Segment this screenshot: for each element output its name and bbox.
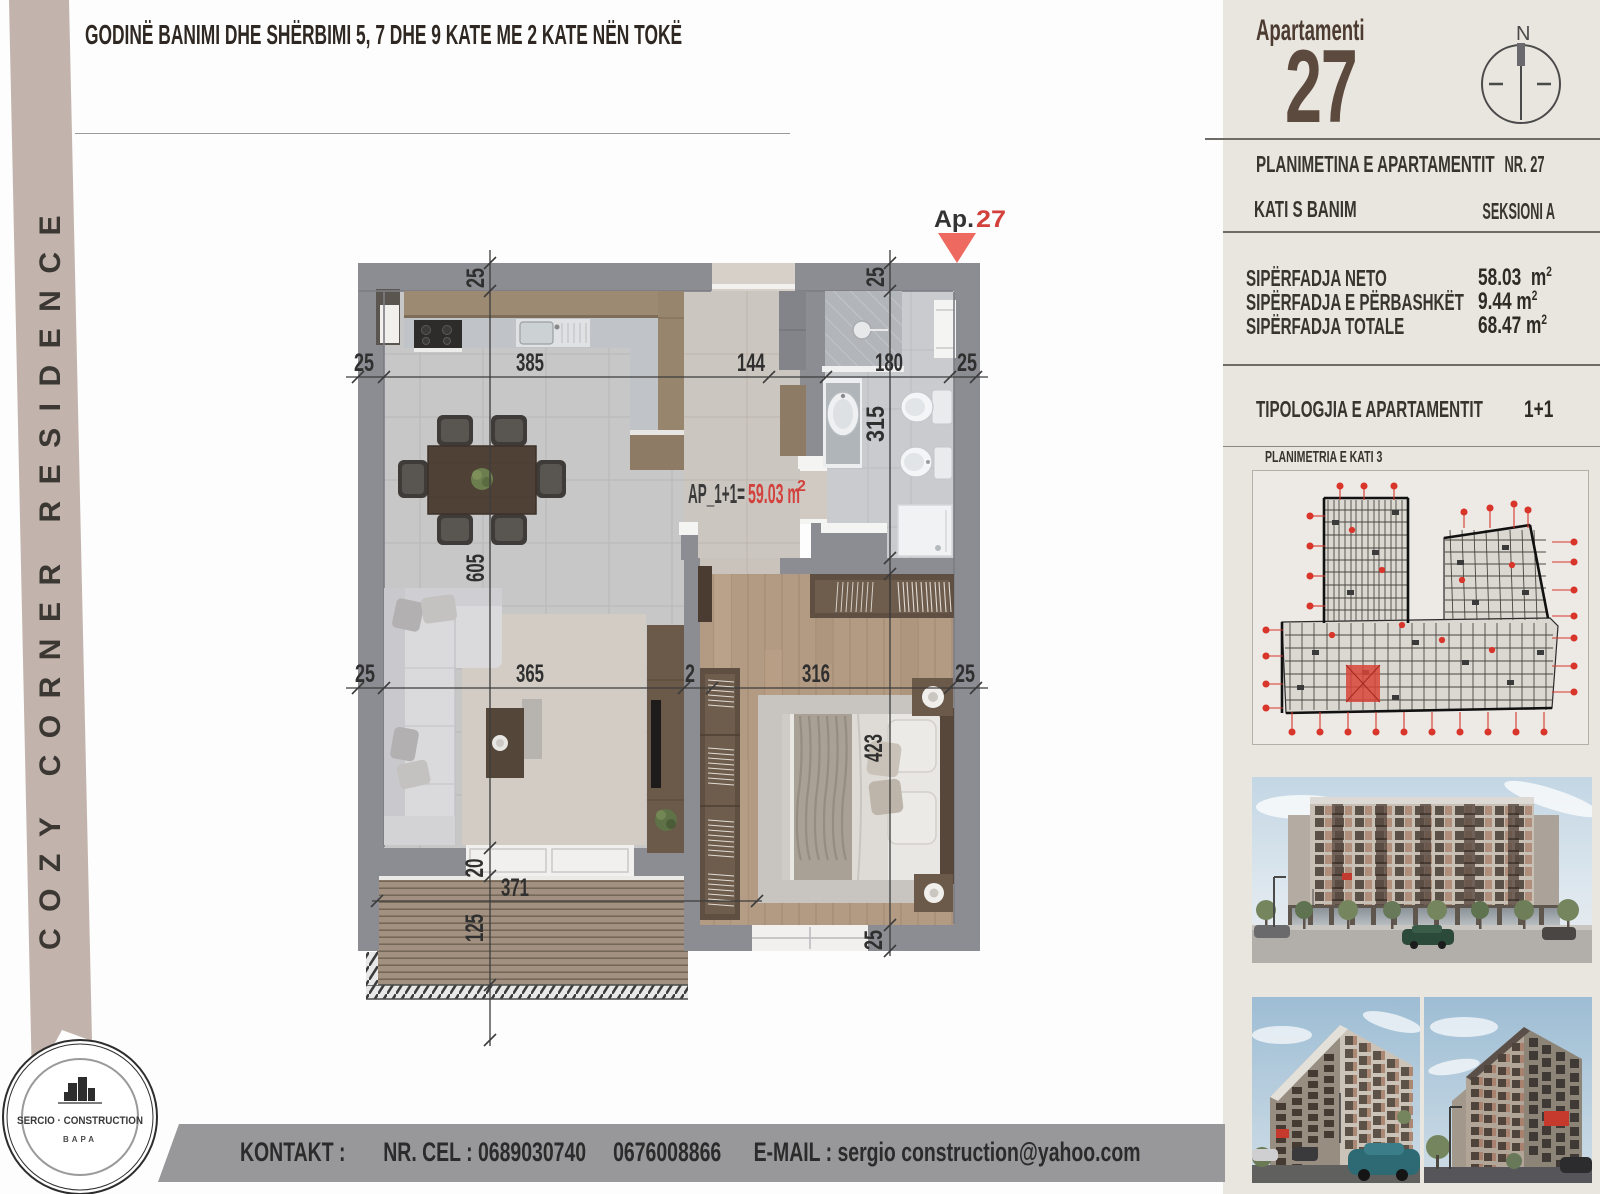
- svg-text:25: 25: [354, 349, 374, 377]
- svg-text:BAPA: BAPA: [63, 1135, 97, 1144]
- svg-text:316: 316: [802, 660, 830, 688]
- svg-text:365: 365: [516, 660, 544, 688]
- svg-text:605: 605: [462, 554, 490, 582]
- svg-text:423: 423: [860, 734, 888, 762]
- svg-text:2: 2: [685, 660, 695, 688]
- svg-text:180: 180: [875, 349, 903, 377]
- svg-text:AP_1+1=: AP_1+1=: [688, 478, 745, 509]
- svg-text:385: 385: [516, 349, 544, 377]
- svg-text:25: 25: [957, 349, 977, 377]
- svg-text:125: 125: [461, 914, 489, 942]
- svg-text:25: 25: [462, 268, 490, 288]
- svg-text:144: 144: [737, 349, 765, 377]
- svg-text:27: 27: [976, 206, 1006, 233]
- svg-text:371: 371: [501, 874, 529, 902]
- svg-text:SERCIO · CONSTRUCTION: SERCIO · CONSTRUCTION: [17, 1115, 143, 1127]
- svg-text:315: 315: [862, 406, 890, 442]
- svg-text:2: 2: [797, 478, 806, 495]
- svg-text:25: 25: [862, 267, 890, 287]
- svg-text:COZY CORNER RESIDENCE: COZY CORNER RESIDENCE: [34, 199, 67, 950]
- svg-text:59.03 m: 59.03 m: [748, 478, 800, 509]
- svg-text:25: 25: [955, 660, 975, 688]
- svg-text:20: 20: [461, 859, 489, 878]
- svg-text:N: N: [1516, 23, 1530, 45]
- svg-text:25: 25: [355, 660, 375, 688]
- svg-text:25: 25: [860, 930, 888, 950]
- svg-text:Ap.: Ap.: [934, 206, 974, 233]
